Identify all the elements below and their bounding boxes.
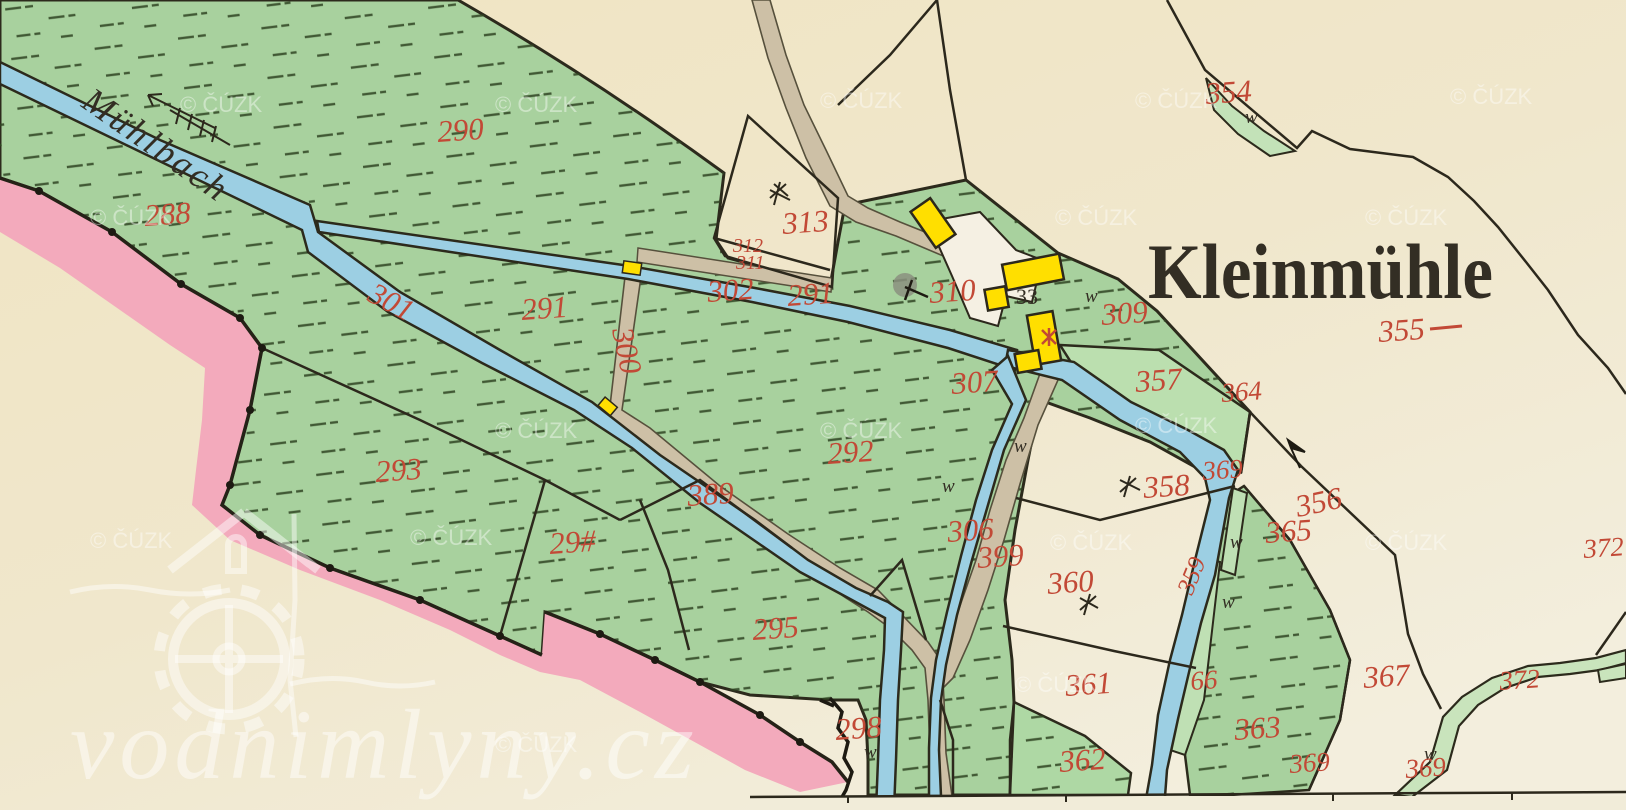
- svg-text:389: 389: [685, 475, 735, 513]
- svg-text:358: 358: [1141, 467, 1191, 505]
- svg-text:310: 310: [927, 272, 977, 310]
- svg-text:© ČÚZK: © ČÚZK: [1050, 530, 1133, 555]
- svg-text:302: 302: [705, 271, 755, 309]
- svg-text:372: 372: [1497, 663, 1540, 696]
- svg-text:309: 309: [1099, 294, 1149, 332]
- svg-text:291: 291: [520, 289, 569, 327]
- svg-text:w: w: [1222, 592, 1235, 613]
- svg-text:369: 369: [1200, 453, 1244, 486]
- svg-text:399: 399: [975, 537, 1025, 575]
- svg-text:369: 369: [1287, 746, 1331, 779]
- svg-text:29#: 29#: [548, 523, 597, 561]
- svg-text:© ČÚZK: © ČÚZK: [90, 205, 173, 230]
- svg-text:© ČÚZK: © ČÚZK: [820, 88, 903, 113]
- svg-text:w: w: [1085, 286, 1098, 307]
- svg-text:364: 364: [1219, 375, 1262, 408]
- svg-text:290: 290: [436, 111, 485, 149]
- svg-text:293: 293: [374, 451, 423, 489]
- svg-text:© ČÚZK: © ČÚZK: [1365, 205, 1448, 230]
- svg-text:© ČÚZK: © ČÚZK: [820, 418, 903, 443]
- svg-text:367: 367: [1361, 657, 1412, 695]
- svg-text:313: 313: [780, 203, 830, 241]
- svg-text:© ČÚZK: © ČÚZK: [1450, 84, 1533, 109]
- svg-text:360: 360: [1045, 563, 1095, 601]
- svg-text:355: 355: [1376, 311, 1426, 349]
- svg-text:© ČÚZK: © ČÚZK: [1015, 672, 1098, 697]
- svg-text:w: w: [942, 476, 955, 497]
- svg-text:298: 298: [834, 709, 883, 747]
- svg-text:© ČÚZK: © ČÚZK: [495, 732, 578, 757]
- svg-text:33: 33: [1016, 284, 1038, 309]
- svg-text:© ČÚZK: © ČÚZK: [495, 92, 578, 117]
- svg-text:357: 357: [1133, 361, 1184, 399]
- svg-text:© ČÚZK: © ČÚZK: [1365, 530, 1448, 555]
- svg-text:295: 295: [751, 609, 800, 647]
- svg-text:372: 372: [1581, 531, 1624, 564]
- svg-text:362: 362: [1057, 741, 1107, 779]
- svg-text:w: w: [1245, 107, 1258, 128]
- svg-text:w: w: [864, 742, 877, 763]
- svg-text:w: w: [1014, 436, 1027, 457]
- svg-text:369: 369: [1403, 751, 1447, 784]
- svg-text:66: 66: [1189, 664, 1219, 696]
- svg-text:© ČÚZK: © ČÚZK: [1055, 205, 1138, 230]
- svg-text:363: 363: [1232, 709, 1282, 747]
- svg-text:291: 291: [786, 275, 835, 313]
- svg-text:© ČÚZK: © ČÚZK: [410, 525, 493, 550]
- svg-text:w: w: [1230, 532, 1243, 553]
- svg-text:307: 307: [949, 363, 1000, 401]
- svg-text:© ČÚZK: © ČÚZK: [1135, 413, 1218, 438]
- svg-text:© ČÚZK: © ČÚZK: [1135, 88, 1218, 113]
- svg-text:© ČÚZK: © ČÚZK: [90, 528, 173, 553]
- svg-text:© ČÚZK: © ČÚZK: [495, 418, 578, 443]
- svg-text:311: 311: [735, 252, 765, 274]
- svg-text:vodnimlyny.cz: vodnimlyny.cz: [70, 689, 699, 800]
- svg-text:Kleinmühle: Kleinmühle: [1148, 228, 1493, 315]
- svg-text:© ČÚZK: © ČÚZK: [180, 92, 263, 117]
